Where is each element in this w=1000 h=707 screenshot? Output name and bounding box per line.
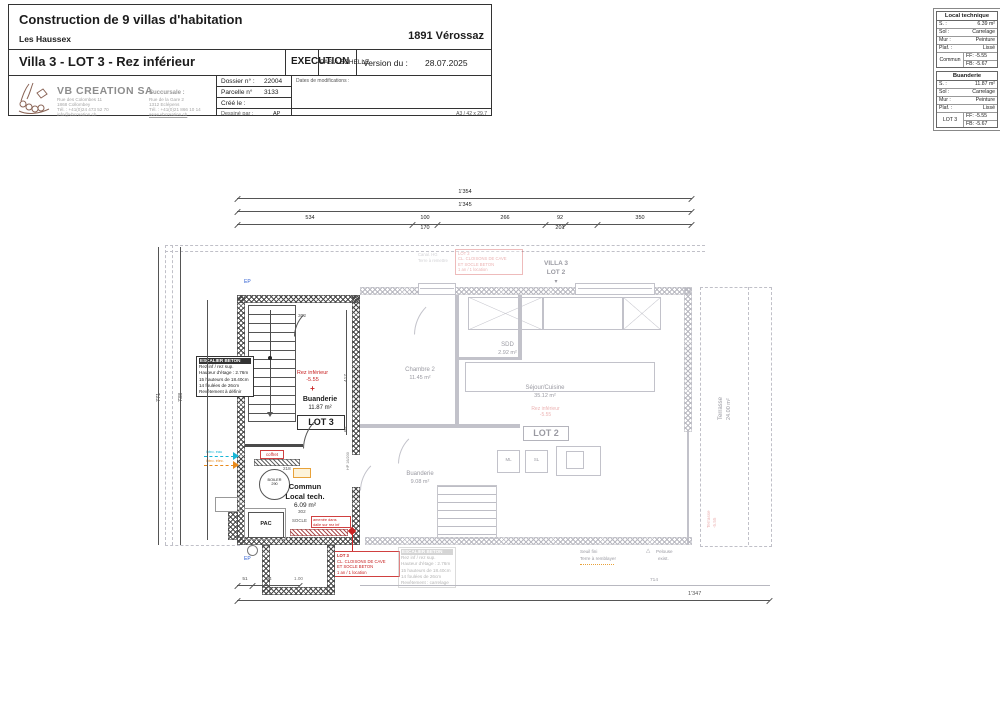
company-logo xyxy=(15,81,55,115)
wall-top-lot3 xyxy=(237,295,360,303)
dim-417: 417 xyxy=(344,374,349,382)
note-line: 1 an / 1 location xyxy=(458,267,520,272)
wall-right-lower-lot2 xyxy=(687,432,689,545)
dim-line-inner xyxy=(237,211,692,212)
dossier-value: 22004 xyxy=(264,78,282,85)
socle-label: SOCLE xyxy=(292,518,307,523)
dim-302-top: 302 xyxy=(298,314,306,319)
coffret-hatch xyxy=(254,459,300,466)
ep-label-bottom: EP xyxy=(244,556,251,562)
plan-sheet: Construction de 9 villas d'habitation Le… xyxy=(0,0,1000,707)
divider xyxy=(216,108,491,109)
dim-bottom-small xyxy=(237,585,300,586)
divider xyxy=(216,97,291,98)
wall-right-lot2 xyxy=(684,287,692,432)
divider xyxy=(291,75,292,115)
spec-owner: Commun xyxy=(937,53,964,67)
dim-302-bottom: 302 xyxy=(298,509,306,514)
partition-hall xyxy=(360,424,520,428)
value: 11.87 m² xyxy=(975,81,995,88)
dim-seg2b: 170 xyxy=(410,225,440,231)
wall-separation-lot3-lot2 xyxy=(352,295,360,455)
spec-ff: FF: -5.55 xyxy=(964,113,997,121)
socle-red-note: amenée dans dalle sur rez inf xyxy=(311,516,351,528)
divider xyxy=(216,75,217,115)
spec-ff: FF: -5.55 xyxy=(964,53,997,61)
level-value-lot2: -5.55 xyxy=(518,412,573,418)
stair-arrow-icon xyxy=(267,412,273,417)
washer-label: ML xyxy=(497,457,520,462)
divider xyxy=(9,75,491,76)
label: S. : xyxy=(939,81,947,88)
label: S. : xyxy=(939,21,947,28)
socle-hatch xyxy=(290,529,348,536)
intro-elec-arrowhead-icon xyxy=(233,461,239,469)
red-note-lot2: LOT 2 CL. CLOISONS DE CAVE ET SOCLE BETO… xyxy=(455,249,523,275)
parcelle-label: Parcelle n° xyxy=(221,89,253,96)
spec-local-technique: Local technique S. :6.39 m² Sol :Carrela… xyxy=(936,11,998,68)
dim-218: 218 xyxy=(283,466,291,471)
roof-overhang-line xyxy=(165,245,166,545)
spec-tables: Local technique S. :6.39 m² Sol :Carrela… xyxy=(933,8,1000,131)
dim-top-total: 1'354 xyxy=(435,189,495,195)
dim-tick xyxy=(594,222,600,228)
intro-eau-label: intro. eau xyxy=(206,449,222,454)
label: Sol : xyxy=(939,29,949,36)
dim-seg4b: 201 xyxy=(545,225,575,231)
red-note-lot3: LOT 3 CL. CLOISONS DE CAVE ET SOCLE BETO… xyxy=(334,551,400,577)
sheet-title: Villa 3 - LOT 3 - Rez inférieur xyxy=(19,54,195,69)
dim-left-inner-value: 738 xyxy=(178,393,184,402)
door-arc-entry xyxy=(414,295,454,335)
project-district: Les Haussex xyxy=(19,34,71,44)
stair-note-lot2: ESCALIER BETON Rez inf / rez sup. Hauteu… xyxy=(398,547,456,588)
format-note: A3 / 42 x 29.7 xyxy=(409,111,487,117)
stair-curve xyxy=(294,305,326,337)
dim-line-total xyxy=(237,198,692,199)
terrasse-level-value: -5.55 xyxy=(712,518,717,528)
staircase-lot2 xyxy=(437,485,497,539)
coffret-label: coffret xyxy=(260,450,284,459)
hp-label: HP 16/200 xyxy=(346,452,350,470)
kitchen-table xyxy=(465,362,655,392)
room-commun-line1: Commun xyxy=(275,482,335,491)
room-buanderie3-name: Buanderie xyxy=(288,396,352,403)
value: 6.39 m² xyxy=(977,21,995,28)
value: Carrelage xyxy=(972,89,995,96)
dim-top-inner: 1'345 xyxy=(435,202,495,208)
mods-label: Dates de modifications : xyxy=(296,78,349,84)
level-value-lot3: -5.55 xyxy=(285,377,340,383)
version-date: 28.07.2025 xyxy=(425,58,468,68)
dim-line-segments xyxy=(237,224,692,225)
company-website: www.vbcreation.ch xyxy=(149,112,187,117)
note-line: Hauteur d'étage : 2.76m xyxy=(401,561,453,567)
level-marker-icon: + xyxy=(285,384,340,393)
divider xyxy=(216,86,291,87)
room-commun-line2: Local tech. xyxy=(275,492,335,501)
partition-chambre2 xyxy=(455,295,459,427)
lot2-badge: LOT 2 xyxy=(523,426,569,441)
label: Mur : xyxy=(939,37,951,44)
site-canal-label: Canal. HG xyxy=(418,252,438,257)
dim-60: 60 xyxy=(344,427,349,432)
value: Peinture xyxy=(976,37,995,44)
divider xyxy=(318,49,319,75)
remblai-squiggle xyxy=(580,564,614,565)
label: Plaf. : xyxy=(939,45,952,52)
site-terre-label: Terre à remettre xyxy=(418,258,448,263)
spec-title: Buanderie xyxy=(937,72,997,81)
villa-header: VILLA 3 xyxy=(526,260,586,267)
dim-714: 714 xyxy=(650,578,658,583)
partition-buanderie-commun xyxy=(245,444,303,447)
divider xyxy=(285,49,286,75)
stair-walk-line xyxy=(270,310,271,414)
dossier-label: Dossier n° : xyxy=(221,78,255,85)
dim-seg2: 100 xyxy=(410,215,440,221)
terrace-outline xyxy=(700,287,772,547)
pac-label: PAC xyxy=(249,521,283,527)
title-block: Construction de 9 villas d'habitation Le… xyxy=(8,4,492,116)
dim-seg1: 534 xyxy=(290,215,330,221)
label: Sol : xyxy=(939,89,949,96)
intro-eau-arrow xyxy=(204,456,234,457)
gaine-orange xyxy=(293,468,311,478)
level-label-lot3: Rez inférieur xyxy=(285,370,340,376)
dim-seg4: 92 xyxy=(545,215,575,221)
dryer-label: SL xyxy=(525,457,548,462)
note-line: 15 hauteurs de 18.40cm xyxy=(401,568,453,574)
project-city: 1891 Vérossaz xyxy=(339,30,484,42)
label: Mur : xyxy=(939,97,951,104)
coffret-text: coffret xyxy=(266,452,278,457)
value: Peinture xyxy=(976,97,995,104)
value: Carrelage xyxy=(972,29,995,36)
remblai-label: Terre à remblayer xyxy=(580,556,616,561)
partition-sdd-bottom xyxy=(459,357,522,360)
dim-51: 51 xyxy=(237,577,253,582)
pac-unit: PAC xyxy=(248,512,284,538)
project-title: Construction de 9 villas d'habitation xyxy=(19,12,242,27)
roof-overhang-line xyxy=(165,245,705,246)
company-name: VB CREATION SA xyxy=(57,85,153,97)
spec-fb: FB: -5.67 xyxy=(964,121,997,128)
room-sdd-area: 2.92 m² xyxy=(480,350,535,356)
note-line: 1 an / 1 location xyxy=(337,570,397,576)
pit-wall-bottom xyxy=(262,587,335,595)
terrace-edge-line xyxy=(748,287,749,545)
stair-start-dot xyxy=(268,356,272,360)
roof-overhang-line xyxy=(172,245,173,545)
intro-elec-label: intro. élec. xyxy=(206,458,224,463)
value: Lissé xyxy=(983,105,995,112)
dim-v-line xyxy=(346,310,347,435)
ep-circle xyxy=(247,545,258,556)
room-sejour-area: 35.12 m² xyxy=(500,393,590,399)
room-terrasse-name: Terrasse xyxy=(718,397,724,420)
dim-left-wall-chain xyxy=(207,300,208,540)
dessine-value: AP xyxy=(273,111,280,117)
seuil-label: Seuil fini xyxy=(580,549,597,554)
wall-bottom-lot2 xyxy=(365,537,692,545)
dim-94: 94 xyxy=(254,577,284,582)
dim-left-outer-value: 771 xyxy=(156,393,162,402)
villa-lot-header: LOT 2 xyxy=(526,269,586,276)
note-line: dalle sur rez inf xyxy=(313,522,349,527)
value: Lissé xyxy=(983,45,995,52)
spec-owner: LOT 3 xyxy=(937,113,964,127)
room-terrasse-area: 24.00 m² xyxy=(726,398,732,420)
version-label: Version du : xyxy=(363,58,408,68)
terrasse-level-label: Terrasse xyxy=(706,510,711,528)
room-sdd-name: SDD xyxy=(480,342,535,348)
dim-seg5: 350 xyxy=(620,215,660,221)
room-chambre2-name: Chambre 2 xyxy=(385,367,455,373)
red-leader-line xyxy=(352,531,353,551)
intro-elec-arrow xyxy=(204,465,234,466)
window-glass-line xyxy=(578,288,652,289)
pelouse-exist-label: exist. xyxy=(658,556,669,561)
dim-bottom-total: 1'347 xyxy=(688,591,701,597)
window-chambre2 xyxy=(418,283,456,295)
window-sejour xyxy=(575,283,655,295)
divider xyxy=(9,49,491,50)
label: Plaf. : xyxy=(939,105,952,112)
scale-note: PAS A ECHELLE xyxy=(320,59,369,66)
company-email: info@vbcreation.ch xyxy=(57,112,96,117)
spec-title: Local technique xyxy=(937,12,997,21)
kitchen-counter xyxy=(543,297,623,330)
door-arc-lot2 xyxy=(398,428,434,464)
room-chambre2-area: 11.45 m² xyxy=(385,375,455,381)
dim-bottom-faded xyxy=(360,585,770,586)
spec-fb: FB: -5.67 xyxy=(964,61,997,68)
dim-tick xyxy=(249,583,255,589)
kitchen-appliance xyxy=(623,297,661,330)
pelouse-label: Pelouse xyxy=(656,549,673,554)
stair-note-lot3: ESCALIER BETON Rez inf / rez sup. Hauteu… xyxy=(196,356,254,397)
window-glass-line xyxy=(420,288,454,289)
ext-wall-left xyxy=(228,512,238,540)
room-buanderie2-name: Buanderie xyxy=(390,471,450,477)
ep-label-top: EP xyxy=(244,279,251,285)
door-arc-corridor xyxy=(360,455,396,491)
ext-box-left xyxy=(215,497,240,512)
branch-label: Succursale : xyxy=(149,90,185,96)
parcelle-value: 3133 xyxy=(264,89,278,96)
cree-label: Créé le : xyxy=(221,100,246,107)
dim-bottom-total-line xyxy=(237,600,770,601)
dim-seg3: 266 xyxy=(485,215,525,221)
roof-overhang-line xyxy=(165,545,240,546)
dessine-label: Dessiné par : xyxy=(221,111,253,117)
sink-bowl xyxy=(566,451,584,469)
kitchen-unit-crossed xyxy=(468,297,543,330)
pelouse-symbol-icon: △ xyxy=(646,548,650,554)
intro-eau-arrowhead-icon xyxy=(233,452,239,460)
spec-buanderie: Buanderie S. :11.87 m² Sol :Carrelage Mu… xyxy=(936,71,998,128)
